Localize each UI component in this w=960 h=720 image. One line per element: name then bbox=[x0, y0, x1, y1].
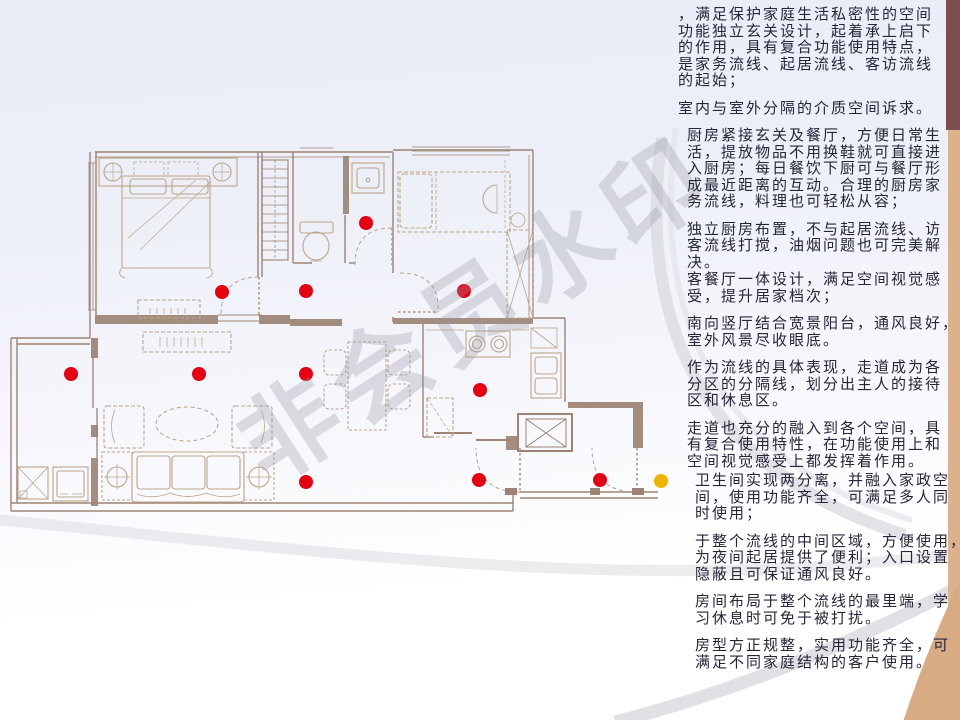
red-marker-dot bbox=[473, 383, 487, 397]
annotation-paragraph: 室内与室外分隔的介质空间诉求。 bbox=[678, 100, 960, 117]
annotation-paragraph: 独立厨房布置，不与起居流线、访 客流线打搅，油烟问题也可完美解 决。 bbox=[687, 221, 960, 271]
annotation-paragraph: 厨房紧接玄关及餐厅，方便日常生 活，提放物品不用换鞋就可直接进 入厨房；每日餐饮… bbox=[687, 127, 960, 210]
sofa bbox=[132, 452, 244, 502]
red-marker-dot bbox=[64, 367, 78, 381]
walls-layer bbox=[11, 150, 658, 511]
shaft-box bbox=[18, 467, 48, 499]
annotation-paragraph: ，满足保护家庭生活私密性的空间 功能独立玄关设计，起着承上启下 的作用，具有复合… bbox=[678, 6, 960, 89]
red-marker-dot bbox=[192, 367, 206, 381]
single-bed bbox=[398, 172, 510, 232]
shelf-column bbox=[262, 160, 288, 260]
marker-layer bbox=[64, 216, 668, 489]
red-marker-dot bbox=[472, 473, 486, 487]
stove bbox=[466, 331, 510, 357]
annotation-paragraph: 走道也充分的融入到各个空间，具 有复合使用特性，在功能使用上和 空间视觉感受上都… bbox=[687, 420, 960, 470]
red-marker-dot bbox=[593, 473, 607, 487]
annotation-paragraph: 卫生间实现两分离，并融入家政空 间，使用功能齐全，可满足多人同 时使用； bbox=[695, 472, 960, 522]
coffee-table bbox=[156, 407, 218, 441]
red-marker-dot bbox=[299, 475, 313, 489]
red-marker-dot bbox=[299, 367, 313, 381]
furniture-layer bbox=[18, 158, 561, 502]
red-marker-dot bbox=[359, 216, 373, 230]
annotation-column: ，满足保护家庭生活私密性的空间 功能独立玄关设计，起着承上启下 的作用，具有复合… bbox=[678, 6, 960, 681]
red-marker-dot bbox=[457, 284, 471, 298]
red-marker-dot bbox=[299, 284, 313, 298]
side-table-left bbox=[102, 452, 132, 500]
yellow-marker-dot bbox=[654, 474, 668, 488]
kitchen-sink bbox=[531, 353, 561, 398]
desk-chair bbox=[483, 185, 525, 227]
toilet bbox=[300, 222, 333, 261]
red-marker-dot bbox=[215, 285, 229, 299]
wardrobe bbox=[99, 158, 237, 186]
doors-layer bbox=[221, 228, 644, 495]
armchair-right bbox=[232, 406, 272, 448]
side-table-right bbox=[244, 452, 274, 500]
dining-set bbox=[324, 342, 410, 430]
annotation-paragraph: 客餐厅一体设计，满足空间视觉感 受，提升居家档次； bbox=[687, 271, 960, 304]
armchair-left bbox=[104, 406, 144, 448]
annotation-paragraph: 房型方正规整，实用功能齐全，可 满足不同家庭结构的客户使用。 bbox=[695, 637, 960, 670]
washbasin bbox=[352, 163, 384, 193]
annotation-paragraph: 作为流线的具体表现，走道成为各 分区的分隔线，划分出主人的接待 区和休息区。 bbox=[687, 359, 960, 409]
annotation-paragraph: 于整个流线的中间区域，方便使用， 为夜间起居提供了便利；入口设置 隐蔽且可保证通… bbox=[695, 533, 960, 583]
tv-cabinet bbox=[143, 332, 231, 352]
annotation-paragraph: 房间布局于整个流线的最里端，学 习休息时可免于被打扰。 bbox=[695, 593, 960, 626]
washing-machine bbox=[53, 467, 88, 501]
kitchen-cabinet bbox=[427, 398, 453, 437]
double-bed bbox=[120, 176, 213, 278]
annotation-paragraph: 南向竖厅结合宽景阳台，通风良好， 室外风景尽收眼底。 bbox=[687, 315, 960, 348]
